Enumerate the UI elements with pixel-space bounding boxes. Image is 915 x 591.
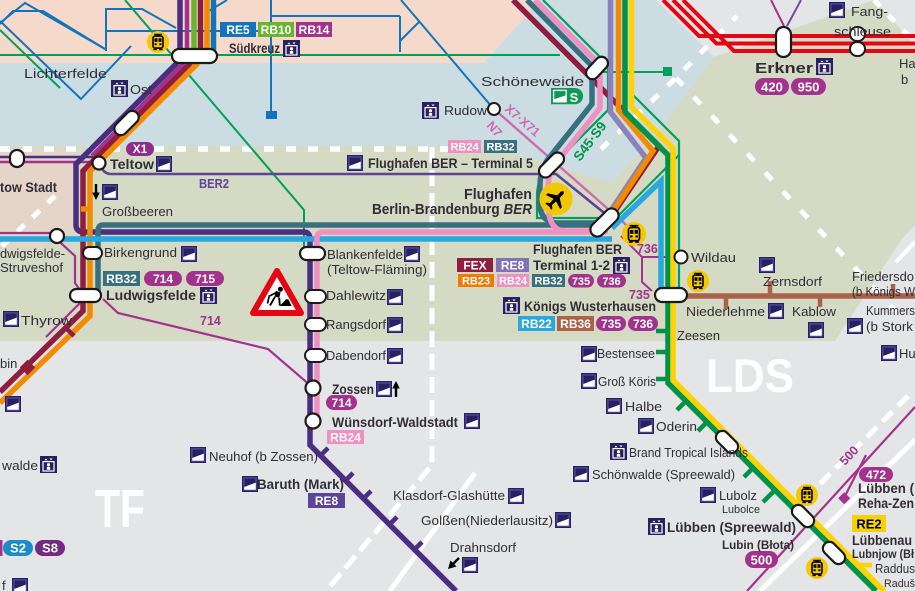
svg-text:Lübben (Spreewald): Lübben (Spreewald) [667,520,796,535]
svg-text:b: b [901,72,908,87]
svg-text:RB24: RB24 [330,431,361,445]
svg-text:walde: walde [1,458,38,473]
svg-text:S8: S8 [42,541,58,556]
svg-text:736: 736 [633,317,653,331]
svg-text:dwigsfelde-: dwigsfelde- [0,246,65,261]
svg-text:Birkengrund: Birkengrund [104,245,177,260]
svg-text:Reha-Zen: Reha-Zen [858,496,914,511]
svg-text:420: 420 [761,80,783,95]
svg-text:Raddus: Raddus [875,561,915,576]
svg-text:Blankenfelde: Blankenfelde [327,247,403,262]
svg-text:Lübben (: Lübben ( [858,481,914,496]
svg-text:S: S [570,90,579,105]
svg-text:Rudow: Rudow [444,103,488,118]
svg-text:Hu: Hu [899,346,915,361]
svg-text:RB14: RB14 [299,23,330,37]
svg-text:f: f [2,578,6,591]
svg-text:714: 714 [200,314,221,328]
svg-text:TF: TF [95,479,145,539]
svg-text:Teltow: Teltow [110,157,154,172]
svg-text:714: 714 [153,272,173,286]
svg-text:RB32: RB32 [486,142,514,154]
svg-text:Halbe: Halbe [625,399,662,414]
svg-text:Dahlewitz: Dahlewitz [326,288,386,303]
svg-text:Schöneweide: Schöneweide [481,74,584,89]
svg-text:Thyrow: Thyrow [21,313,73,328]
svg-text:Oderin: Oderin [656,419,697,434]
svg-text:Königs Wusterhausen: Königs Wusterhausen [524,299,656,314]
svg-text:RE8: RE8 [315,494,339,508]
svg-text:Flughafen: Flughafen [464,187,532,203]
svg-text:Wildau: Wildau [691,250,736,265]
svg-text:Lubin (Błota): Lubin (Błota) [722,540,794,552]
svg-text:Friedersdo: Friedersdo [852,269,914,284]
svg-text:RE8: RE8 [501,259,525,273]
svg-text:Lichterfelde: Lichterfelde [24,66,107,81]
svg-text:bin: bin [0,356,17,371]
svg-text:Lübbenau: Lübbenau [852,533,912,548]
svg-text:Neuhof (b Zossen): Neuhof (b Zossen) [209,449,318,464]
svg-text:715: 715 [195,272,215,286]
svg-text:Südkreuz: Südkreuz [229,41,280,56]
svg-text:LDS: LDS [706,349,794,402]
svg-text:Niederlehme: Niederlehme [686,304,765,319]
svg-text:950: 950 [798,80,820,95]
svg-text:Ha: Ha [899,56,915,71]
svg-text:Zernsdorf: Zernsdorf [763,274,822,289]
svg-text:RB36: RB36 [560,317,591,331]
svg-text:Erkner: Erkner [755,61,813,77]
svg-text:Baruth (Mark): Baruth (Mark) [257,477,344,492]
svg-text:Flughafen BER: Flughafen BER [533,242,622,257]
svg-text:Ludwigsfelde: Ludwigsfelde [106,288,196,303]
svg-text:Lubnjow (Bł: Lubnjow (Bł [852,549,915,561]
svg-text:S2: S2 [10,541,26,556]
svg-text:RE2: RE2 [856,517,881,532]
svg-text:736: 736 [637,242,658,256]
svg-text:RB22: RB22 [521,317,552,331]
svg-text:Bestensee: Bestensee [597,346,655,361]
svg-text:Schönwalde (Spreewald): Schönwalde (Spreewald) [592,467,735,482]
svg-text:RE5: RE5 [226,23,250,37]
svg-text:(b Stork: (b Stork [866,319,914,334]
svg-text:RB23: RB23 [462,276,490,288]
svg-text:Drahnsdorf: Drahnsdorf [450,540,516,555]
svg-text:(Teltow-Fläming): (Teltow-Fläming) [327,262,427,277]
svg-text:BER2: BER2 [199,176,229,191]
svg-text:472: 472 [866,468,886,482]
svg-text:RB32: RB32 [534,276,562,288]
svg-text:RB24: RB24 [499,276,528,288]
svg-text:FEX: FEX [463,259,486,273]
svg-text:714: 714 [331,396,351,410]
svg-text:Groß Köris: Groß Köris [598,374,656,389]
svg-text:Terminal 1-2: Terminal 1-2 [533,258,610,273]
svg-text:RB32: RB32 [106,272,137,286]
svg-text:tow Stadt: tow Stadt [0,180,57,195]
svg-text:Großbeeren: Großbeeren [102,204,173,219]
svg-text:735: 735 [601,317,621,331]
svg-text:Brand Tropical Islands: Brand Tropical Islands [629,445,748,460]
svg-text:Raduš: Raduš [884,578,915,590]
svg-text:Berlin-Brandenburg BER: Berlin-Brandenburg BER [372,202,532,218]
svg-text:Fang-: Fang- [851,4,888,19]
svg-text:Dabendorf: Dabendorf [326,348,386,363]
svg-text:X1: X1 [133,142,148,156]
svg-text:Zossen: Zossen [332,382,374,397]
svg-text:Struveshof: Struveshof [0,260,63,275]
svg-text:Rangsdorf: Rangsdorf [326,317,386,332]
svg-text:Klasdorf-Glashütte: Klasdorf-Glashütte [393,488,505,503]
svg-text:Zeesen: Zeesen [677,328,720,343]
svg-text:Kummers: Kummers [866,303,915,318]
svg-text:Wünsdorf-Waldstadt: Wünsdorf-Waldstadt [332,415,458,430]
svg-text:(b Königs W: (b Königs W [852,284,915,299]
svg-text:736: 736 [602,276,620,288]
svg-text:RB24: RB24 [450,142,479,154]
svg-text:Ost: Ost [130,82,152,97]
svg-text:Kablow: Kablow [792,304,837,319]
svg-text:schleuse: schleuse [834,24,891,39]
svg-text:Golßen(Niederlausitz): Golßen(Niederlausitz) [421,513,553,528]
svg-text:RB10: RB10 [261,23,292,37]
svg-text:500: 500 [751,553,773,568]
svg-text:Flughafen BER – Terminal 5: Flughafen BER – Terminal 5 [368,156,533,171]
svg-text:Lubolce: Lubolce [722,504,760,516]
svg-text:735: 735 [572,276,590,288]
svg-text:Lubolz: Lubolz [719,488,757,503]
